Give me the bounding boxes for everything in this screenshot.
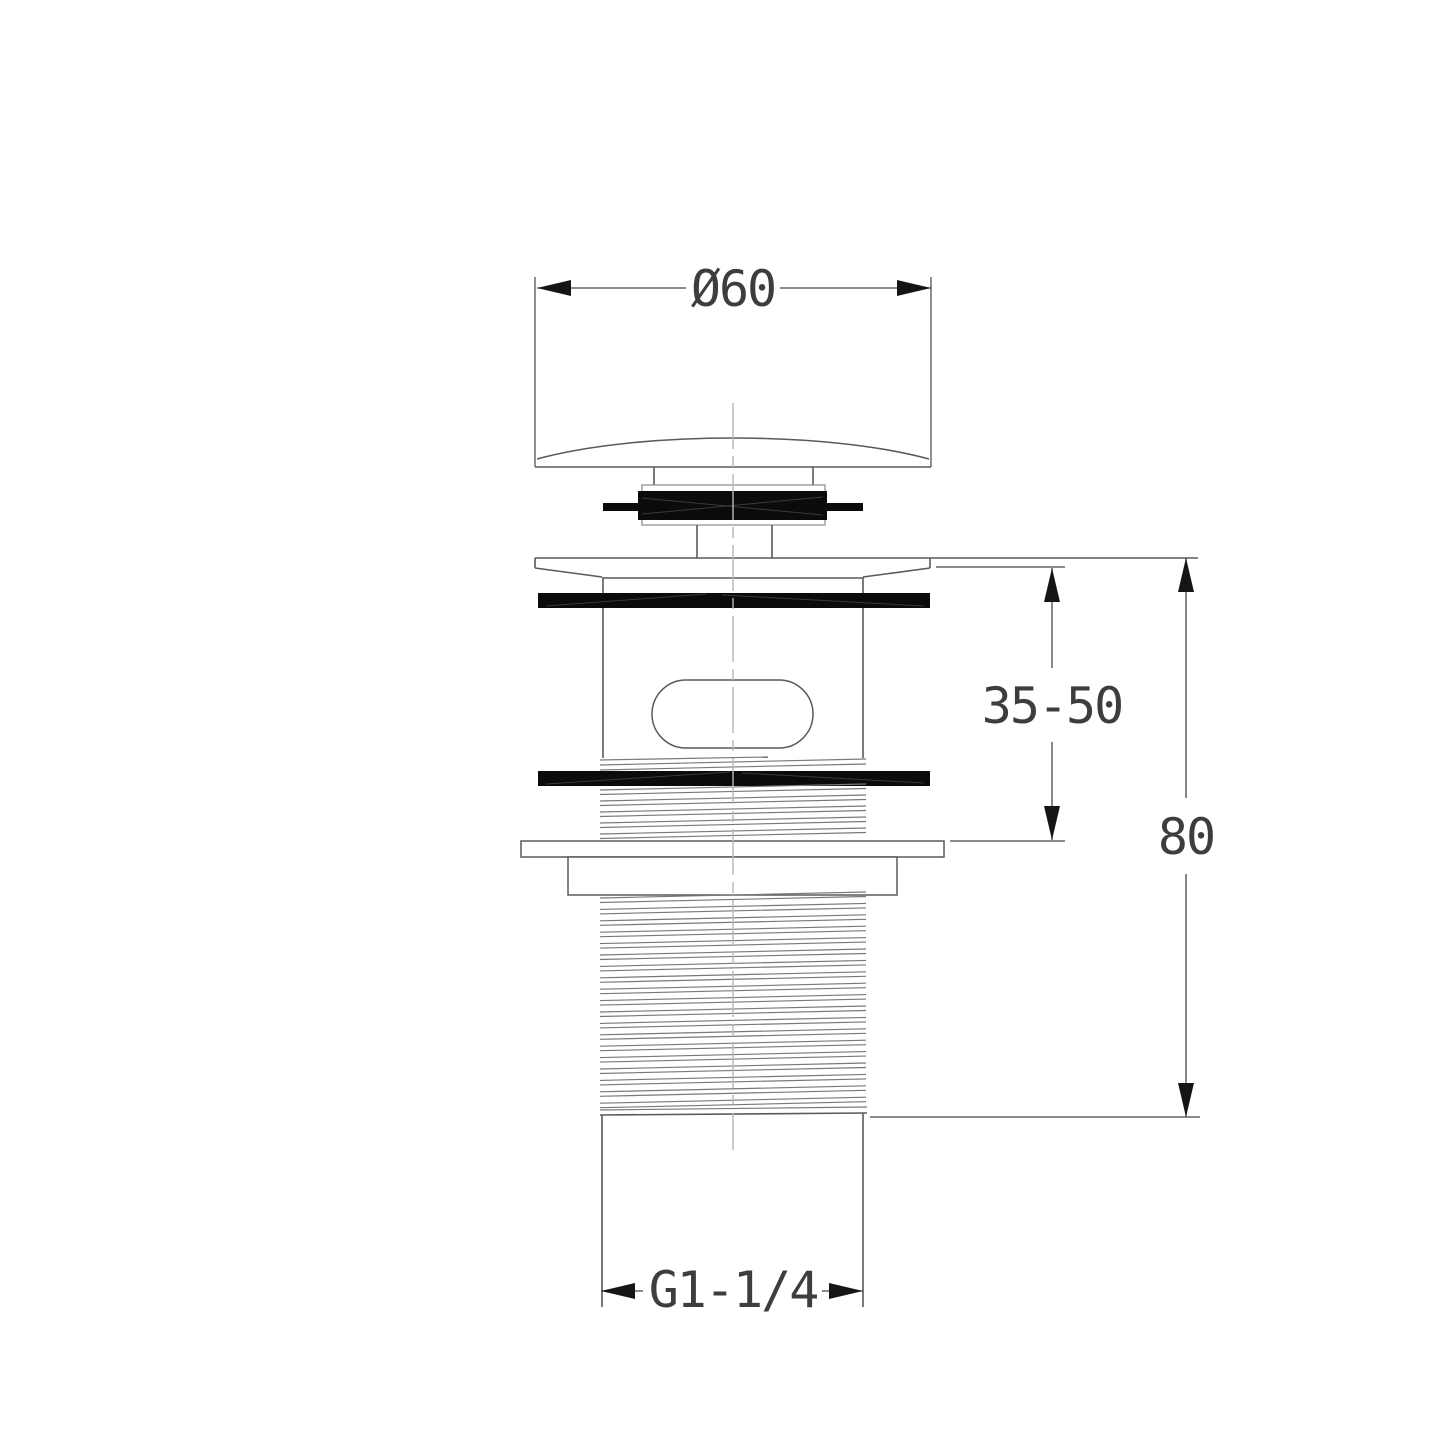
dimension-label-clamp-range: 35-50 [982, 677, 1123, 735]
arrowhead-right-icon [897, 280, 931, 296]
arrowhead-down-icon [1044, 806, 1060, 840]
arrowhead-up-icon [1044, 568, 1060, 602]
dimension-35-50: 35-50 [936, 567, 1122, 841]
dimension-label-overall-height: 80 [1158, 808, 1214, 866]
plug-stem-lower [697, 525, 772, 558]
arrowhead-down-icon [1178, 1083, 1194, 1117]
gasket-upper [538, 593, 930, 608]
arrowhead-left-icon [537, 280, 571, 296]
dimension-thread-spec: G1-1/4 [601, 1261, 863, 1319]
dimension-label-diameter: Ø60 [691, 260, 775, 318]
arrowhead-left-icon [601, 1283, 635, 1299]
flange [535, 558, 1198, 578]
dimension-diameter-60: Ø60 [537, 260, 931, 318]
drawing-canvas: Ø60 [0, 0, 1445, 1445]
dimension-80: 80 [870, 558, 1214, 1117]
arrowhead-right-icon [829, 1283, 863, 1299]
arrowhead-up-icon [1178, 558, 1194, 592]
technical-drawing: Ø60 [0, 0, 1445, 1445]
dimension-label-thread: G1-1/4 [649, 1261, 818, 1319]
gasket-lower [538, 771, 930, 786]
